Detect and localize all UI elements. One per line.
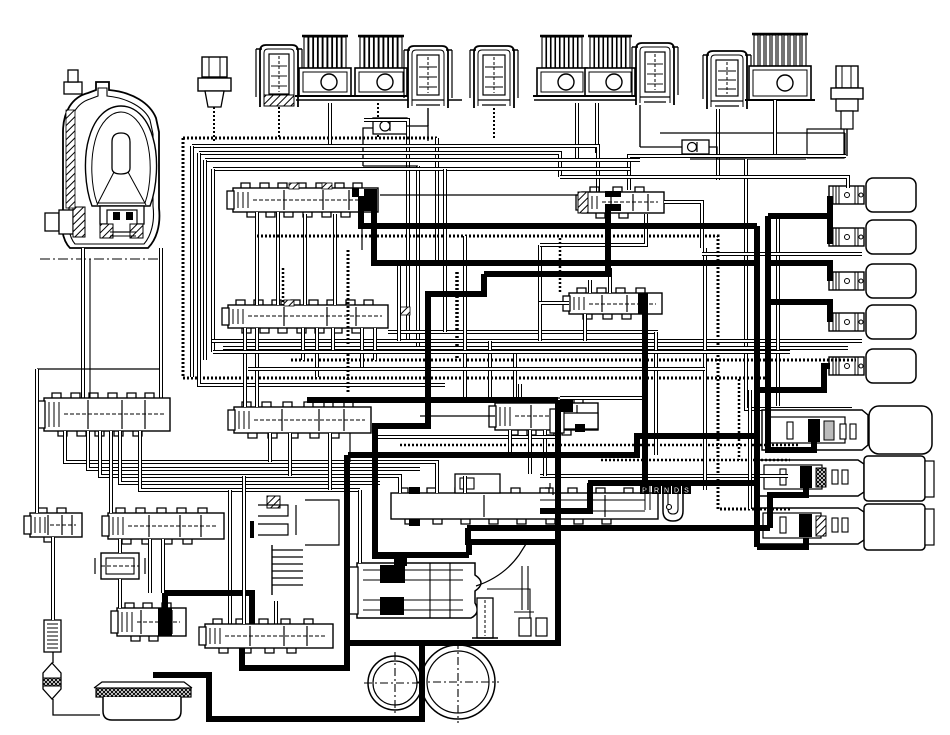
svg-text:R: R — [654, 488, 659, 495]
svg-text:S: S — [684, 488, 689, 495]
svg-text:D: D — [674, 488, 679, 495]
svg-text:N: N — [664, 488, 669, 495]
